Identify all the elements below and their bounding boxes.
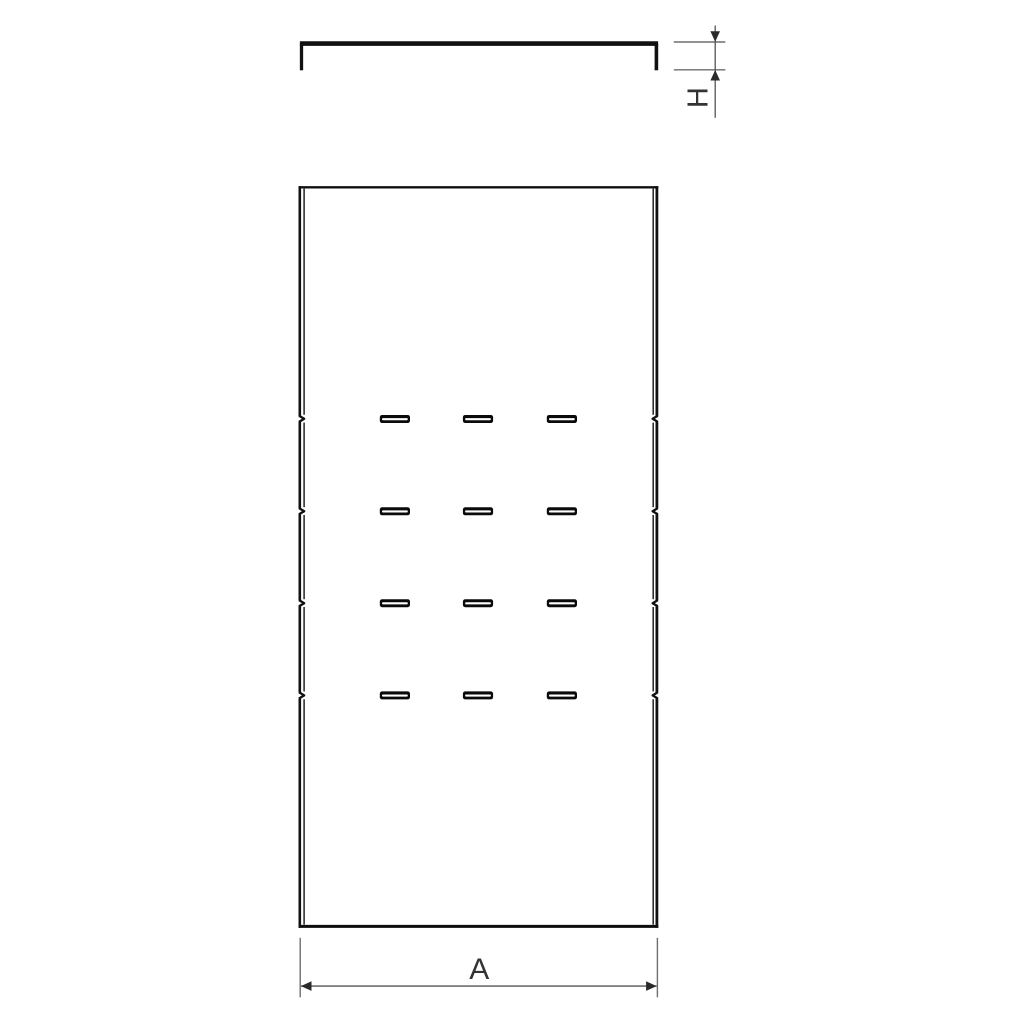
svg-text:A: A (469, 953, 489, 986)
svg-text:H: H (683, 87, 715, 108)
